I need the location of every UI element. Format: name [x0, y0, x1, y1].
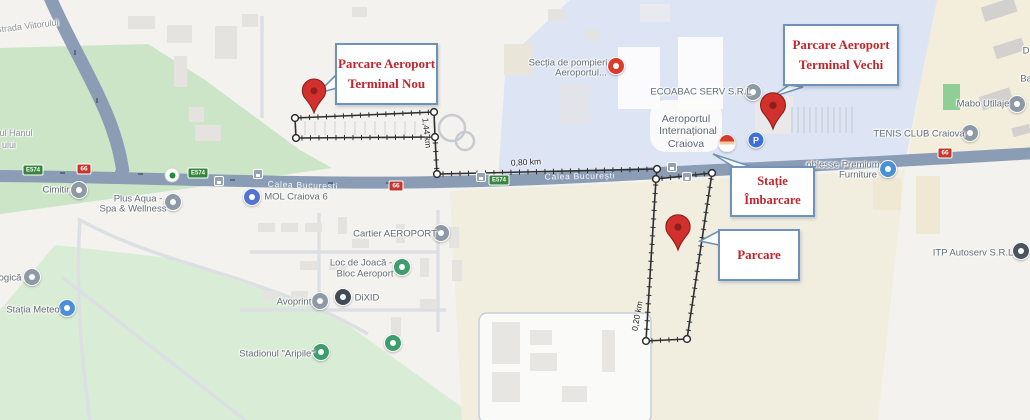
- callout-terminal-vechi-text: Parcare Aeroport: [792, 37, 889, 53]
- callout-parcare-text: Parcare: [737, 247, 781, 263]
- callout-parcare: Parcare: [718, 229, 800, 281]
- callout-statie-imbarcare-text: Îmbarcare: [744, 193, 800, 209]
- callout-statie-imbarcare: StațieÎmbarcare: [730, 166, 815, 217]
- callout-layer: Parcare AeroportTerminal NouParcare Aero…: [0, 0, 1030, 420]
- callout-terminal-vechi-text: Terminal Vechi: [799, 57, 883, 73]
- callout-statie-imbarcare-text: Stație: [757, 174, 788, 190]
- callout-terminal-nou-text: Terminal Nou: [348, 76, 425, 92]
- map-canvas: Strada Viitoruluiul HanululuiCalea Bucur…: [0, 0, 1030, 420]
- callout-terminal-vechi: Parcare AeroportTerminal Vechi: [783, 24, 899, 86]
- callout-terminal-nou: Parcare AeroportTerminal Nou: [335, 43, 438, 105]
- callout-terminal-nou-text: Parcare Aeroport: [338, 56, 435, 72]
